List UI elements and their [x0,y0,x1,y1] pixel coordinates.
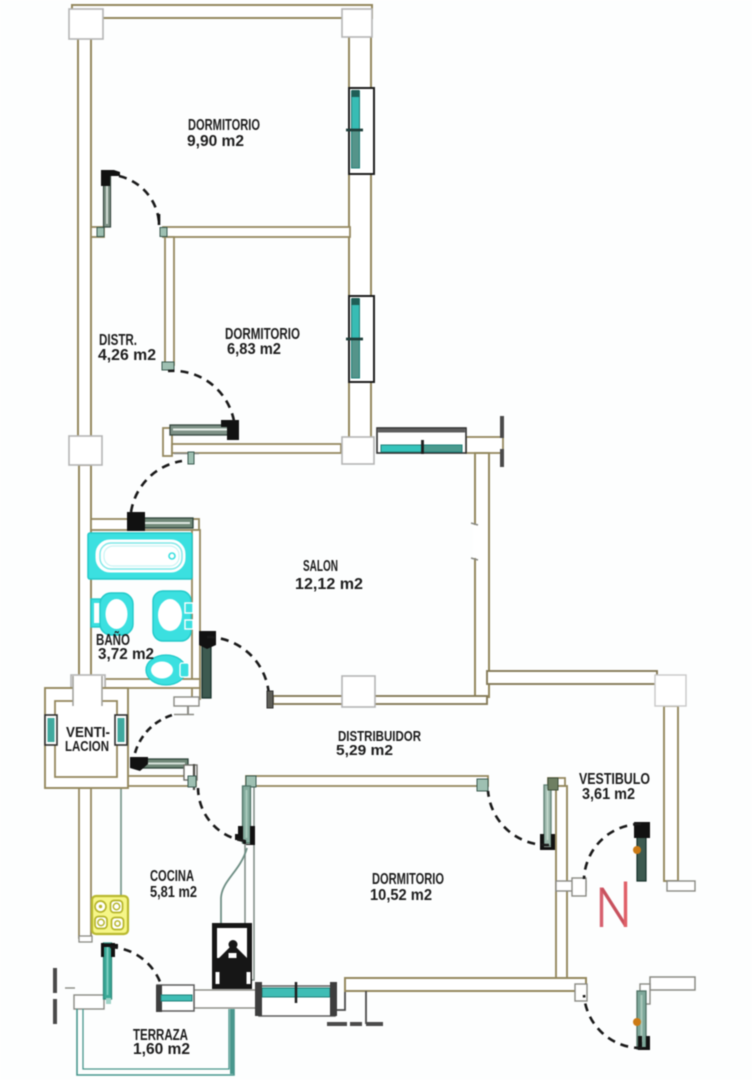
svg-text:SALON: SALON [303,558,338,575]
svg-text:6,83 m2: 6,83 m2 [227,341,281,358]
svg-text:5,29 m2: 5,29 m2 [336,742,393,759]
svg-text:1,60 m2: 1,60 m2 [133,1041,190,1058]
svg-text:3,61 m2: 3,61 m2 [582,786,635,803]
svg-text:LACION: LACION [65,738,109,755]
svg-text:3,72 m2: 3,72 m2 [98,646,154,663]
svg-text:COCINA: COCINA [150,868,194,885]
svg-text:10,52 m2: 10,52 m2 [370,887,432,904]
svg-text:5,81 m2: 5,81 m2 [150,884,197,901]
svg-text:9,90 m2: 9,90 m2 [187,133,244,150]
svg-text:12,12 m2: 12,12 m2 [295,576,363,593]
svg-text:DORMITORIO: DORMITORIO [188,117,260,134]
svg-text:4,26 m2: 4,26 m2 [98,347,156,364]
svg-text:DORMITORIO: DORMITORIO [372,871,444,888]
